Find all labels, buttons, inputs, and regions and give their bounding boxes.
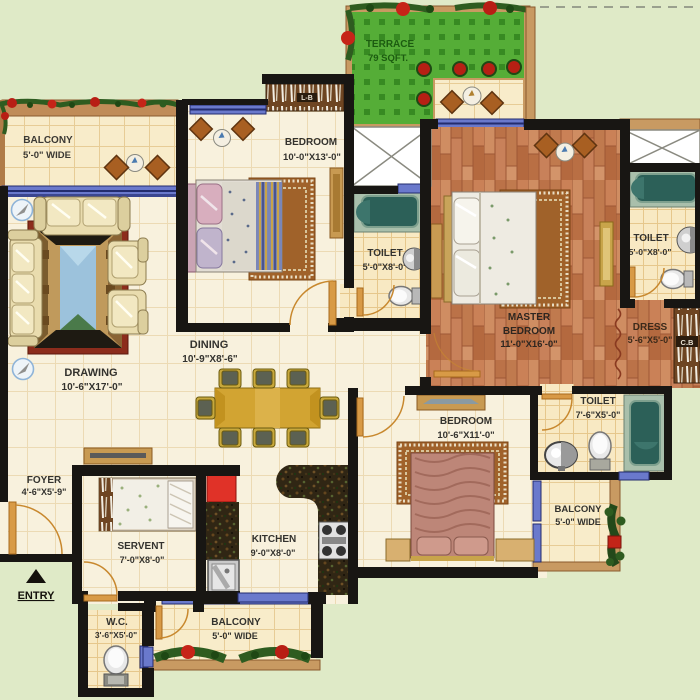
svg-text:TOILET: TOILET [580, 396, 615, 407]
svg-text:7'-0"X8'-0": 7'-0"X8'-0" [120, 555, 165, 565]
svg-text:10'-6"X17'-0": 10'-6"X17'-0" [62, 382, 123, 393]
svg-text:BALCONY: BALCONY [211, 617, 261, 628]
svg-text:TERRACE: TERRACE [366, 39, 415, 50]
svg-text:BEDROOM: BEDROOM [440, 416, 492, 427]
svg-text:SERVENT: SERVENT [117, 541, 164, 552]
svg-text:BEDROOM: BEDROOM [285, 137, 337, 148]
svg-text:79 SQFT.: 79 SQFT. [368, 53, 408, 64]
svg-text:TOILET: TOILET [367, 248, 402, 259]
svg-text:4'-6"X5'-9": 4'-6"X5'-9" [22, 487, 67, 497]
svg-text:10'-6"X11'-0": 10'-6"X11'-0" [437, 430, 494, 441]
svg-text:10'-0"X13'-0": 10'-0"X13'-0" [283, 152, 341, 163]
svg-text:3'-6"X5'-0": 3'-6"X5'-0" [95, 630, 137, 640]
svg-text:DRAWING: DRAWING [64, 367, 117, 379]
svg-text:5'-0" WIDE: 5'-0" WIDE [555, 517, 600, 527]
svg-text:5'-0" WIDE: 5'-0" WIDE [212, 631, 257, 641]
svg-text:L-B: L-B [301, 95, 313, 102]
svg-text:TOILET: TOILET [633, 233, 668, 244]
svg-text:BALCONY: BALCONY [555, 504, 603, 515]
svg-text:W.C.: W.C. [106, 617, 128, 628]
svg-text:BALCONY: BALCONY [23, 135, 73, 146]
svg-text:DRESS: DRESS [633, 322, 668, 333]
svg-text:9'-0"X8'-0": 9'-0"X8'-0" [251, 548, 296, 558]
svg-text:11'-0"X16'-0": 11'-0"X16'-0" [500, 339, 557, 350]
svg-text:ENTRY: ENTRY [18, 590, 56, 602]
svg-text:5'-0"X8'-0": 5'-0"X8'-0" [363, 262, 408, 272]
svg-text:5'-0"X8'-0": 5'-0"X8'-0" [629, 247, 672, 257]
svg-text:BEDROOM: BEDROOM [503, 326, 555, 337]
svg-text:10'-9"X8'-6": 10'-9"X8'-6" [182, 354, 238, 365]
svg-text:5'-6"X5'-0": 5'-6"X5'-0" [628, 335, 673, 345]
svg-text:7'-6"X5'-0": 7'-6"X5'-0" [576, 410, 621, 420]
svg-text:C.B: C.B [681, 338, 695, 347]
svg-text:DINING: DINING [190, 339, 229, 351]
svg-text:MASTER: MASTER [508, 312, 551, 323]
svg-text:5'-0" WIDE: 5'-0" WIDE [23, 150, 71, 161]
svg-text:FOYER: FOYER [27, 475, 62, 486]
svg-text:KITCHEN: KITCHEN [252, 534, 296, 545]
